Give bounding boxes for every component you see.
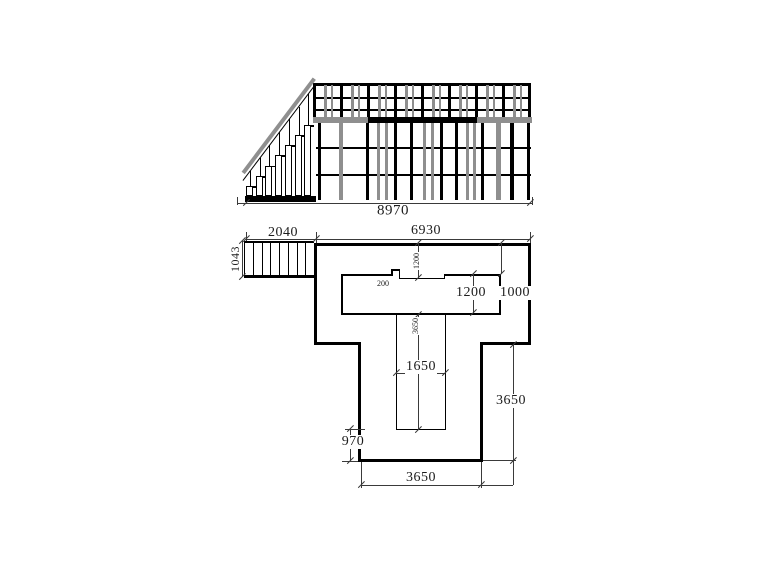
stem-right-edge xyxy=(480,342,483,462)
dim-label-stem-width: 3650 xyxy=(405,471,437,485)
dim-label-opening-depth: 1200 xyxy=(455,286,487,300)
dim-line xyxy=(361,485,513,486)
dim-label-edge-margin: 1000 xyxy=(499,286,531,300)
stair-plan-tread xyxy=(253,243,254,276)
opening-top-left xyxy=(341,274,393,276)
platform-left-edge xyxy=(314,243,317,345)
dim-label-stem-opening-length: 3650 xyxy=(412,317,420,335)
stair-plan-left xyxy=(244,241,245,277)
dim-label-notch-total-depth: 1200 xyxy=(413,252,421,270)
opening-notch-edge xyxy=(399,278,444,279)
stair-plan-tread xyxy=(270,243,271,276)
dim-line xyxy=(242,241,243,277)
opening-bottom xyxy=(341,313,501,315)
stair-plan-tread xyxy=(288,243,289,276)
dim-label-stair-depth: 1043 xyxy=(229,246,241,272)
dim-tick xyxy=(242,199,249,206)
dim-tick xyxy=(526,199,533,206)
dim-label-platform-width: 6930 xyxy=(411,224,441,238)
stair-plan-tread xyxy=(305,243,306,276)
dim-line xyxy=(513,345,514,485)
platform-bottom-edge xyxy=(358,459,483,462)
stem-opening-bottom xyxy=(396,429,446,430)
dim-label-overall-width: 8970 xyxy=(377,204,409,219)
drawing-canvas: 8970 2040 6930 1043 1200 200 1200 1000 3… xyxy=(0,0,760,570)
dim-label-stair-width: 2040 xyxy=(268,226,298,240)
opening-left xyxy=(341,274,343,315)
platform-left-shoulder xyxy=(314,342,361,345)
dim-tick xyxy=(497,270,504,277)
stair-plan-tread xyxy=(262,243,263,276)
dim-label-notch-step: 200 xyxy=(377,280,389,288)
stair-plan-tread xyxy=(279,243,280,276)
platform-right-shoulder xyxy=(480,342,531,345)
dim-label-stem-opening-width: 1650 xyxy=(405,360,437,374)
dim-label-stem-side-length: 3650 xyxy=(495,394,527,408)
dim-label-bottom-margin: 970 xyxy=(341,435,366,449)
dim-line xyxy=(501,243,502,274)
stair-plan-tread xyxy=(297,243,298,276)
